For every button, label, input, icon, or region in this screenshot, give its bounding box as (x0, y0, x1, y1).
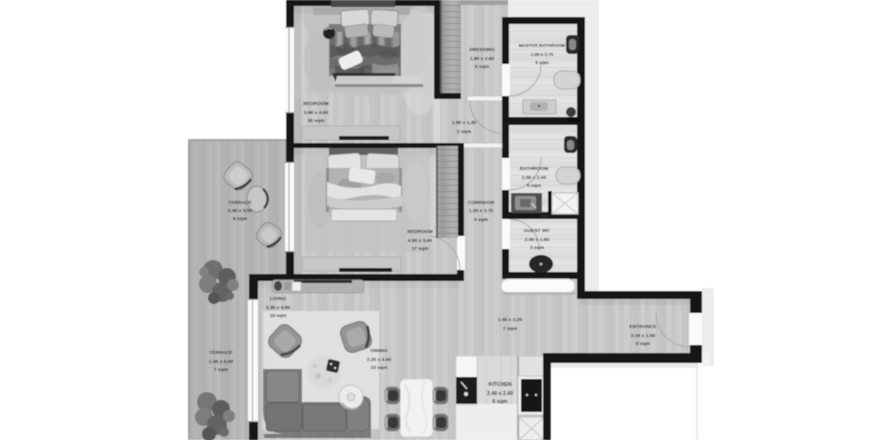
svg-text:TERRACE: TERRACE (228, 200, 252, 206)
svg-text:2 sqm: 2 sqm (457, 129, 472, 135)
svg-text:15 sqm: 15 sqm (270, 313, 288, 319)
svg-text:7 sqm: 7 sqm (214, 367, 229, 373)
svg-text:5 sqm: 5 sqm (475, 64, 490, 70)
svg-text:4 sqm: 4 sqm (474, 217, 489, 223)
svg-text:30 sqm: 30 sqm (308, 118, 326, 124)
svg-text:1.90 x 2.60: 1.90 x 2.60 (470, 56, 495, 62)
svg-text:CORRIDOR: CORRIDOR (468, 200, 495, 206)
svg-text:2.45 x 3.50: 2.45 x 3.50 (228, 208, 253, 214)
svg-text:17 sqm: 17 sqm (412, 246, 430, 252)
svg-text:4.50 x 3.60: 4.50 x 3.60 (408, 238, 433, 244)
svg-text:10 sqm: 10 sqm (371, 365, 389, 371)
svg-text:3.90 x 4.60: 3.90 x 4.60 (304, 110, 329, 116)
svg-text:2.00 x 2.70: 2.00 x 2.70 (531, 52, 554, 57)
svg-text:1.45 x 5.00: 1.45 x 5.00 (209, 359, 234, 365)
svg-text:BEDROOM: BEDROOM (407, 229, 433, 235)
svg-text:1.20 x 3.70: 1.20 x 3.70 (469, 208, 494, 214)
svg-text:MASTER BATHROOM: MASTER BATHROOM (519, 43, 566, 48)
svg-text:9 sqm: 9 sqm (233, 216, 248, 222)
svg-text:GUEST WC: GUEST WC (524, 228, 551, 234)
svg-text:2.25 x 4.60: 2.25 x 4.60 (367, 357, 392, 363)
svg-text:BATHROOM: BATHROOM (520, 166, 548, 172)
svg-text:3.19 x 1.50: 3.19 x 1.50 (631, 333, 656, 339)
svg-text:DRESSING: DRESSING (469, 47, 495, 53)
svg-text:BEDROOM: BEDROOM (303, 101, 329, 107)
svg-text:LIVING: LIVING (270, 296, 286, 302)
svg-text:1.80 x 1.30: 1.80 x 1.30 (452, 120, 477, 126)
svg-text:KITCHEN: KITCHEN (488, 382, 511, 388)
svg-text:ENTRANCE: ENTRANCE (629, 324, 657, 330)
svg-text:1.45 x 2.20: 1.45 x 2.20 (498, 317, 523, 323)
svg-text:6 sqm: 6 sqm (493, 399, 508, 405)
svg-text:7 sqm: 7 sqm (503, 326, 518, 332)
svg-text:2.40 x 2.40: 2.40 x 2.40 (487, 391, 513, 397)
svg-text:5 sqm: 5 sqm (535, 60, 548, 65)
svg-text:5 sqm: 5 sqm (527, 183, 542, 189)
svg-text:3.35 x 4.80: 3.35 x 4.80 (266, 305, 291, 311)
svg-text:2.00 x 2.40: 2.00 x 2.40 (522, 175, 547, 181)
svg-text:5 sqm: 5 sqm (636, 341, 651, 347)
svg-text:TERRACE: TERRACE (209, 350, 233, 356)
svg-text:3 sqm: 3 sqm (530, 245, 545, 251)
svg-text:DINING: DINING (370, 348, 387, 354)
svg-text:2.00 x 1.60: 2.00 x 1.60 (525, 237, 550, 243)
